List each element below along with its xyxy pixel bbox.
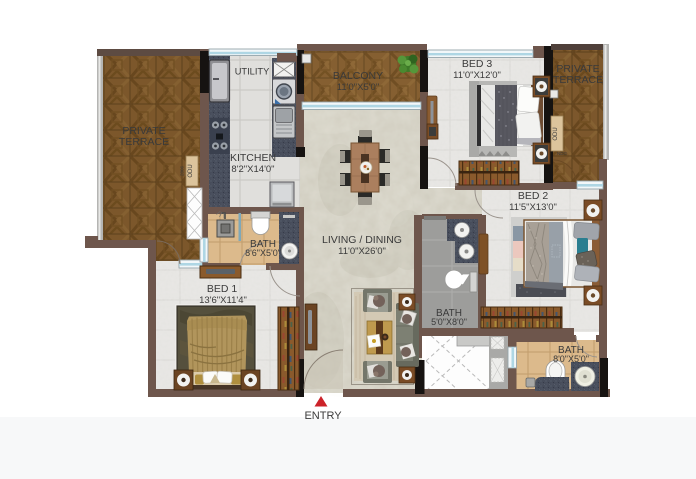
svg-text:13'6"X11'4": 13'6"X11'4" xyxy=(199,295,247,306)
svg-text:LIVING / DINING: LIVING / DINING xyxy=(322,234,402,246)
svg-text:11'5"X13'0": 11'5"X13'0" xyxy=(509,202,557,213)
svg-text:ENTRY: ENTRY xyxy=(304,410,342,422)
svg-text:11'0"X12'0": 11'0"X12'0" xyxy=(453,70,501,81)
svg-text:2806: 2806 xyxy=(180,165,185,176)
svg-text:8'2"X14'0": 8'2"X14'0" xyxy=(231,164,274,175)
svg-text:KITCHEN: KITCHEN xyxy=(230,152,276,164)
svg-text:BED 1: BED 1 xyxy=(207,283,238,295)
svg-text:8'0"X5'0": 8'0"X5'0" xyxy=(553,354,589,364)
svg-text:TERRACE: TERRACE xyxy=(119,136,169,148)
svg-text:5'0"X8'0": 5'0"X8'0" xyxy=(431,317,467,327)
svg-text:NDG: NDG xyxy=(557,151,567,156)
svg-text:ODU: ODU xyxy=(553,127,559,140)
svg-text:UTILITY: UTILITY xyxy=(235,67,270,77)
svg-text:TERRACE: TERRACE xyxy=(553,74,603,86)
svg-text:ODU: ODU xyxy=(188,164,194,177)
svg-text:BALCONY: BALCONY xyxy=(333,70,383,82)
svg-text:11'0"X26'0": 11'0"X26'0" xyxy=(338,246,386,257)
svg-text:11'0"X5'0": 11'0"X5'0" xyxy=(337,82,379,93)
svg-text:BED 3: BED 3 xyxy=(462,58,493,70)
svg-text:BED 2: BED 2 xyxy=(518,190,549,202)
svg-text:8'6"X5'0": 8'6"X5'0" xyxy=(245,248,281,258)
